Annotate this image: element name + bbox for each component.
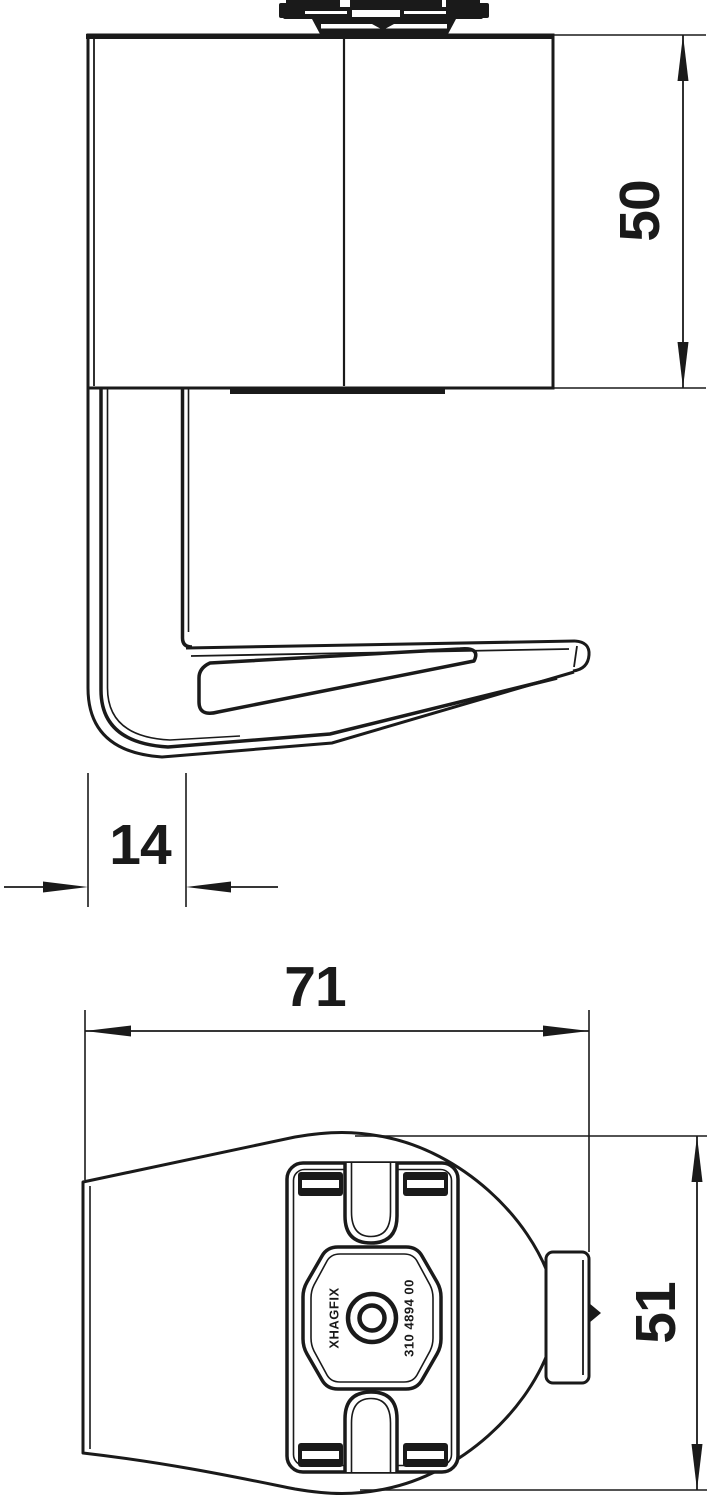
hook-foot-outline [88,388,589,757]
dimension-label-50: 50 [608,180,672,241]
clamp-drawing: 50 14 [0,0,718,1500]
central-boss: XHAGFIX 310 4894 00 [303,1247,441,1389]
clamp-body-outline [86,35,553,391]
u-notch-top [345,1163,397,1243]
mounting-plate: XHAGFIX 310 4894 00 [287,1163,458,1472]
dimension-14: 14 [4,773,278,907]
arrowhead-down [678,342,689,388]
top-view: XHAGFIX 310 4894 00 71 51 [83,955,707,1494]
foot-cutout [199,649,476,714]
screw-hole-inner [360,1306,385,1331]
embossed-marking-left: XHAGFIX [327,1287,342,1348]
dimension-label-71: 71 [284,955,346,1019]
arrowhead-left [85,1026,131,1037]
arrowhead-right [543,1026,589,1037]
arrowhead-right [43,882,88,893]
dimension-label-51: 51 [624,1282,688,1344]
side-view: 50 14 [4,0,706,907]
arrowhead-left [186,882,231,893]
technical-drawing-sheet: 50 14 [0,0,718,1500]
arrowhead-up [678,35,689,81]
embossed-marking-right: 310 4894 00 [402,1279,417,1357]
top-fastener-silhouette [279,0,489,34]
arrowhead-up [692,1136,703,1182]
dimension-label-14: 14 [109,813,172,877]
nose-block [546,1252,601,1383]
arrowhead-down [692,1444,703,1490]
dimension-50: 50 [553,35,706,388]
latch-tooth [589,1303,601,1323]
u-notch-bottom [345,1392,397,1472]
